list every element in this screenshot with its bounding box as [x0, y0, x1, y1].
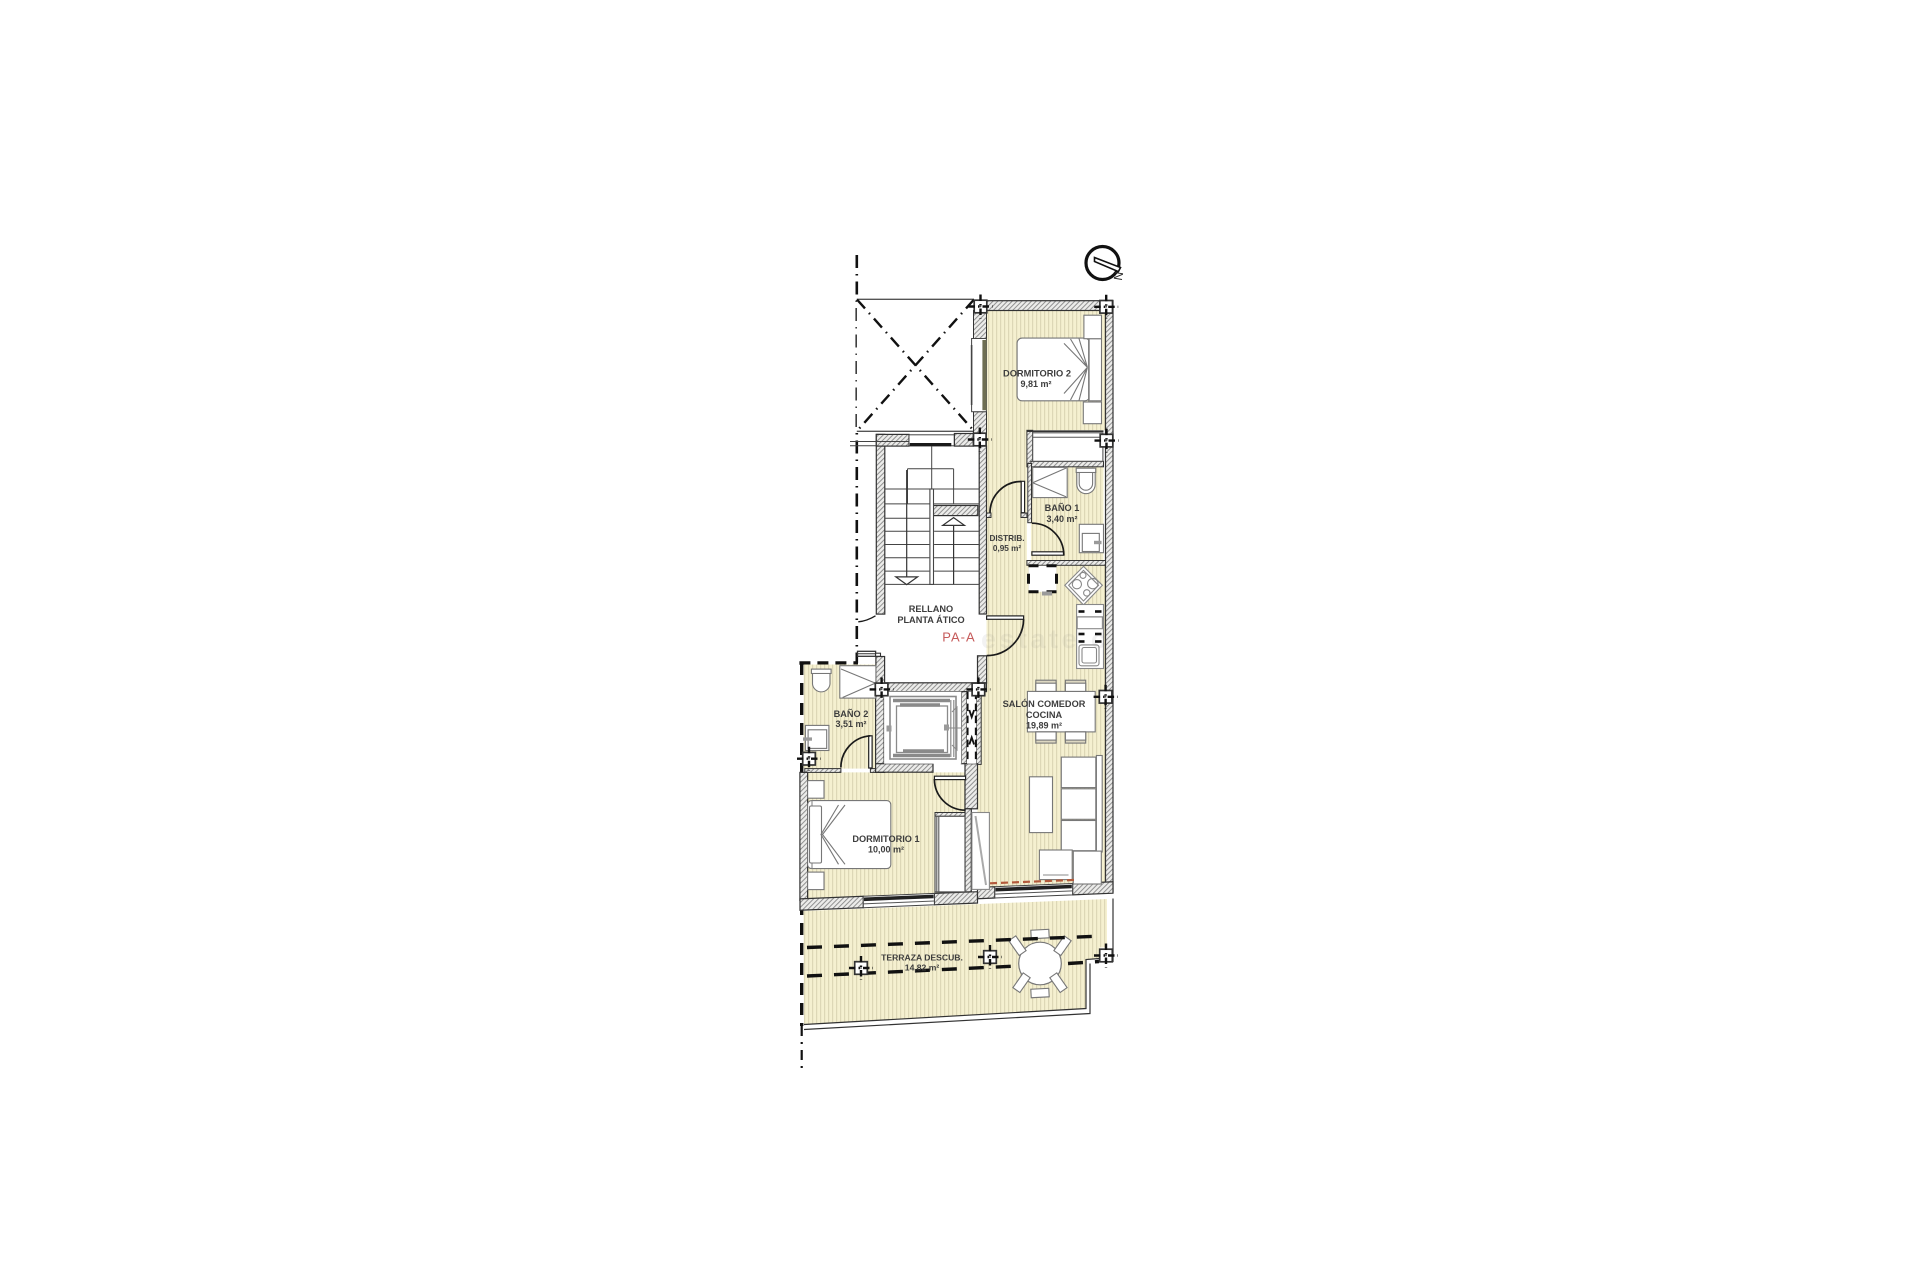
svg-text:BAÑO 2: BAÑO 2: [834, 709, 869, 719]
svg-text:19,89 m²: 19,89 m²: [1026, 721, 1062, 731]
svg-text:0,95 m²: 0,95 m²: [993, 544, 1021, 553]
svg-text:BAÑO 1: BAÑO 1: [1045, 503, 1080, 513]
svg-text:COCINA: COCINA: [1026, 710, 1063, 720]
svg-text:3,40 m²: 3,40 m²: [1046, 514, 1077, 524]
svg-text:TERRAZA DESCUB.: TERRAZA DESCUB.: [881, 953, 963, 963]
svg-text:3,51 m²: 3,51 m²: [835, 719, 866, 729]
svg-text:DORMITORIO 1: DORMITORIO 1: [852, 834, 919, 844]
svg-text:PLANTA ÁTICO: PLANTA ÁTICO: [897, 614, 964, 625]
svg-text:estate c: estate c: [981, 624, 1110, 654]
svg-text:9,81 m²: 9,81 m²: [1020, 379, 1051, 389]
svg-text:DISTRIB.: DISTRIB.: [989, 534, 1024, 543]
svg-text:PA-A: PA-A: [942, 630, 975, 645]
svg-text:DORMITORIO 2: DORMITORIO 2: [1003, 369, 1071, 379]
svg-text:RELLANO: RELLANO: [909, 604, 953, 614]
svg-text:SALÓN COMEDOR: SALÓN COMEDOR: [1003, 698, 1086, 709]
svg-text:10,00 m²: 10,00 m²: [868, 845, 904, 855]
svg-text:14,82 m²: 14,82 m²: [905, 963, 940, 973]
